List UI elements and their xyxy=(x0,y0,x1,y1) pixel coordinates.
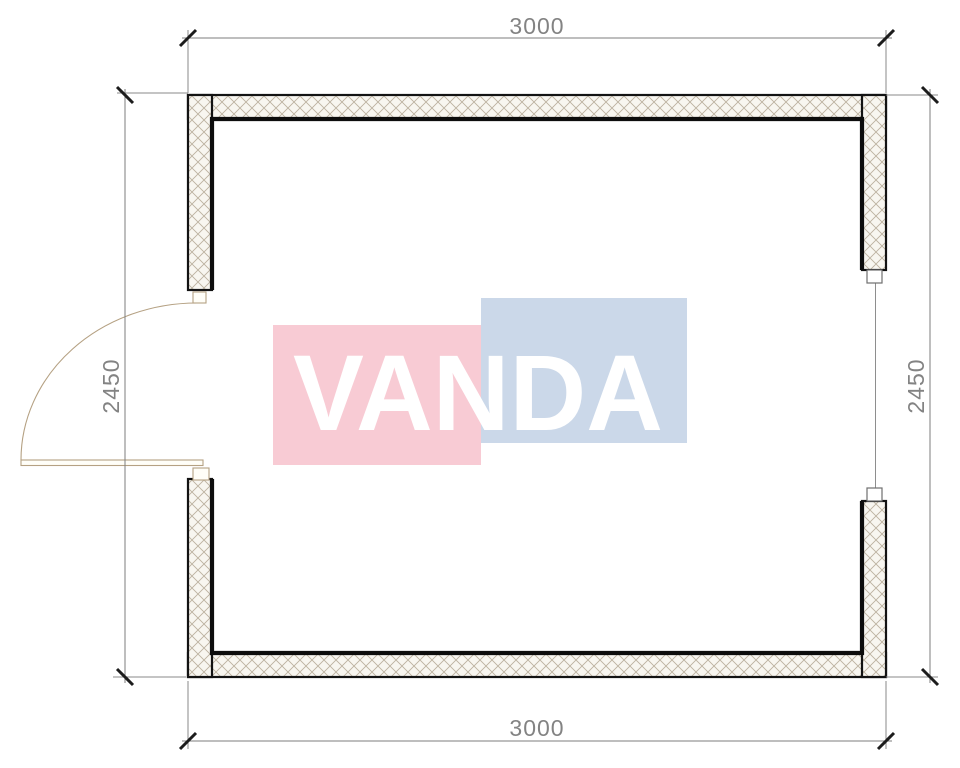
dimension-label-right: 2450 xyxy=(903,358,929,413)
door-jamb-top xyxy=(193,292,206,303)
floor-plan-canvas: VANDA 3000 3000 xyxy=(0,0,960,768)
wall-top xyxy=(188,95,886,119)
dimension-label-left: 2450 xyxy=(98,358,124,413)
dimension-label-top: 3000 xyxy=(509,13,564,39)
window-jamb-bottom xyxy=(867,488,882,501)
window-jamb-top xyxy=(867,270,882,283)
wall-right-lower xyxy=(862,501,886,677)
wall-left-upper xyxy=(188,95,212,290)
wall-bottom xyxy=(188,653,886,677)
logo-text: VANDA xyxy=(293,332,663,453)
wall-left-lower xyxy=(188,479,212,677)
door-jamb-bottom xyxy=(193,468,209,480)
door-leaf xyxy=(21,460,203,466)
wall-right-upper xyxy=(862,95,886,270)
dimension-label-bottom: 3000 xyxy=(509,715,564,741)
floor-plan-page: VANDA 3000 3000 xyxy=(0,0,960,768)
